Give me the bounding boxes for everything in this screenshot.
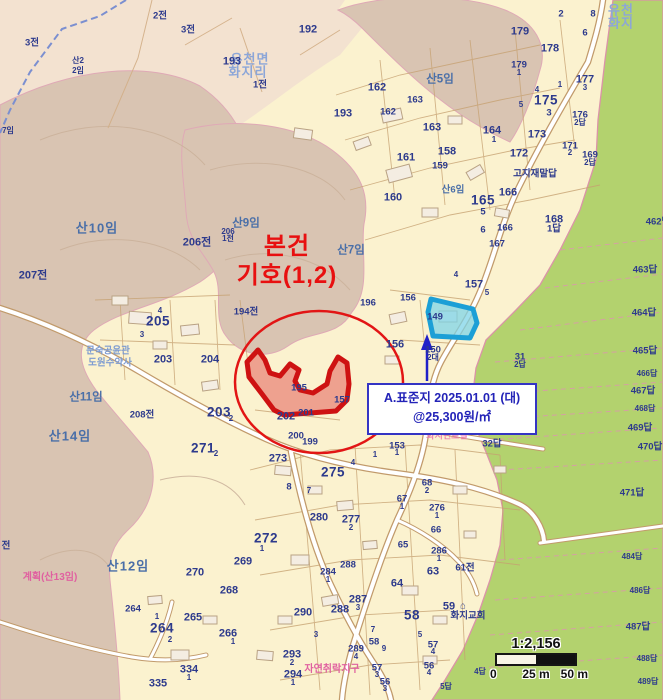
parcel-label: 203 [207,405,231,419]
parcel-label: 58 [404,608,420,622]
parcel-label: 200 [288,431,304,441]
parcel-label: 1 [291,679,295,687]
parcel-label: 1 [437,555,441,563]
region-label: 206전 [183,238,211,249]
scalebar: 1:2,156 0 25 m 50 m [492,636,580,680]
region-label: 문숙공윤관 [86,346,130,356]
parcel-label: 156 [400,293,416,303]
parcel-label: 271 [191,441,215,455]
region-label: 3전 [181,25,195,35]
parcel-label: 199 [302,437,318,447]
parcel-label: 65 [398,540,409,550]
callout-line1: A.표준지 2025.01.01 (대) [369,389,535,408]
region-label: 2전 [153,11,167,21]
parcel-label: 288 [331,605,349,616]
parcel-label: 3 [583,84,587,92]
region-label: 488답 [637,655,658,663]
region-label: 208전 [130,410,155,420]
region-label: 계획(산13임) [23,573,78,583]
parcel-label: 162 [368,83,386,94]
parcel-label: 5 [418,631,422,639]
region-label: 61전 [455,563,474,573]
parcel-label: 1 [260,545,264,553]
region-label: 1전 [222,235,234,243]
standard-lot-callout: A.표준지 2025.01.01 (대) @25,300원/㎡ [367,383,537,435]
region-label: 화지교회 [451,611,486,621]
parcel-label: 2 [168,636,172,644]
parcel-label: 2 [229,415,233,423]
parcel-label: 3 [314,631,318,639]
parcel-label: 166 [499,188,517,199]
region-label: 산2 [72,57,84,65]
parcel-label: 163 [423,123,441,134]
region-label: 4답 [474,668,486,676]
parcel-label: 268 [220,586,238,597]
parcel-label: 2 [425,487,429,495]
parcel-label: 2 [349,524,353,532]
parcel-label: 275 [321,465,345,479]
parcel-label: 192 [299,25,317,36]
region-label: 산10임 [76,222,118,235]
region-label: 2대 [427,354,439,362]
parcel-label: 4 [431,648,435,656]
parcel-label: 1 [326,576,330,584]
region-label: 464답 [632,308,657,318]
region-label: 466답 [637,370,658,378]
region-label: 5답 [440,683,452,691]
region-label: 산6임 [442,185,465,195]
region-label: 1전 [253,80,267,90]
parcel-label: 156 [386,340,404,351]
scale-tick-0: 0 [490,667,497,681]
region-label: 2답 [574,119,586,127]
parcel-label: 173 [528,130,546,141]
region-label: 고지재말답 [513,169,557,179]
parcel-label: 290 [294,608,312,619]
region-label: 화지 [608,17,634,30]
region-label: 207전 [19,271,47,282]
region-label: 467답 [631,386,656,396]
parcel-label: 9 [382,645,386,653]
parcel-label: 203 [154,355,172,366]
parcel-label: 6 [582,28,587,38]
region-label: 2답 [584,159,596,167]
parcel-label: 64 [391,579,403,590]
parcel-label: 157 [334,395,350,405]
parcel-label: 167 [489,239,505,249]
parcel-label: 63 [427,567,439,578]
region-label: 산14임 [49,430,91,443]
parcel-label: 1 [373,451,377,459]
scale-ratio: 1:2,156 [492,636,580,652]
region-label: 469답 [628,423,653,433]
region-label: 2답 [514,361,526,369]
parcel-label: 264 [125,604,141,614]
region-label: 194전 [234,307,259,317]
parcel-label: 66 [431,525,442,535]
region-label: 486답 [630,587,651,595]
parcel-label: 3 [546,108,551,118]
region-label: 산5임 [426,74,454,86]
parcel-label: 4 [354,653,358,661]
region-label: 468답 [635,405,656,413]
parcel-label: 175 [534,93,558,107]
region-label: 465답 [633,346,658,356]
parcel-label: 4 [427,669,431,677]
parcel-label: 264 [150,621,174,635]
region-label: 자연취락지구 [304,665,359,675]
subject-annotation: 본건 기호(1,2) [237,233,338,291]
parcel-label: 7 [307,487,311,495]
parcel-label: 8 [286,482,291,492]
parcel-label: 58 [369,637,380,647]
region-label: 산11임 [69,392,102,404]
parcel-label: 7 [371,626,375,634]
scale-tick-25: 25 m [522,667,549,681]
region-label: 484답 [622,553,643,561]
parcel-label: 178 [541,44,559,55]
parcel-label: 2 [558,9,563,19]
parcel-label: 165 [471,193,495,207]
parcel-label: 2 [290,659,294,667]
region-label: 487답 [626,622,651,632]
region-label: 도원수약사 [88,358,132,368]
parcel-label: 4 [535,86,539,94]
parcel-label: 1 [558,81,562,89]
parcel-label: 265 [184,613,202,624]
map-viewport[interactable]: 2전3전3전산22임유천면화지리1931전192유천화지7임산10임산9임산7임… [0,0,663,700]
parcel-label: 159 [432,161,448,171]
region-label: 3전 [25,38,39,48]
region-label: 463답 [633,265,658,275]
parcel-label: 179 [511,27,529,38]
parcel-label: 3 [375,671,379,679]
region-label: 전 [2,541,11,551]
parcel-label: 6 [480,225,485,235]
parcel-label: 1 [492,136,496,144]
region-label: 489답 [638,678,659,686]
parcel-label: 157 [465,280,483,291]
parcel-label: 158 [438,147,456,158]
parcel-label: 1 [517,69,521,77]
parcel-label: 270 [186,568,204,579]
parcel-label: 2 [214,450,218,458]
region-label: 1답 [547,224,561,234]
region-label: 7임 [2,127,14,135]
parcel-label: 205 [146,314,170,328]
parcel-label: 4 [454,271,458,279]
parcel-label: 163 [407,95,423,105]
parcel-label: 4 [351,459,355,467]
parcel-label: 2 [568,149,572,157]
scale-bar-graphic [495,653,577,666]
parcel-label: 1 [231,638,235,646]
parcel-label: 272 [254,531,278,545]
parcel-label: 196 [360,298,376,308]
parcel-label: 280 [310,513,328,524]
parcel-label: 202 [277,412,295,423]
parcel-label: 3 [356,604,360,612]
parcel-label: 160 [384,193,402,204]
parcel-label: 193 [334,109,352,120]
callout-line2: @25,300원/㎡ [369,408,535,427]
parcel-label: 3 [140,331,144,339]
parcel-label: 1 [187,674,191,682]
region-label: 2임 [72,67,84,75]
parcel-label: 1 [400,503,404,511]
parcel-label: 149 [427,312,443,322]
subject-annotation-line2: 기호(1,2) [237,262,338,291]
subject-annotation-line1: 본건 [237,233,338,262]
parcel-label: 5 [519,101,523,109]
parcel-label: 5 [480,207,485,217]
region-label: 462답 [646,217,663,227]
region-label: 471답 [620,488,645,498]
parcel-label: 335 [149,679,167,690]
scale-tick-50: 50 m [561,667,588,681]
parcel-label: 4 [158,307,162,315]
parcel-label: 166 [497,223,513,233]
parcel-label: 195 [291,383,307,393]
parcel-label: 193 [223,57,241,68]
region-label: 산12임 [107,560,149,573]
region-label: 32답 [482,439,501,449]
parcel-label: 201 [298,408,314,418]
parcel-label: 161 [397,153,415,164]
region-label: 470답 [638,442,663,452]
parcel-label: 3 [383,685,387,693]
parcel-label: 288 [340,560,356,570]
parcel-label: 273 [269,454,287,465]
region-label: 산9임 [232,218,260,230]
parcel-label: 204 [201,355,219,366]
parcel-label: 269 [234,557,252,568]
parcel-label: 5 [485,289,489,297]
parcel-label: 8 [590,9,595,19]
parcel-label: 1 [395,449,399,457]
parcel-label: 1 [435,512,439,520]
region-label: 산7임 [337,245,365,257]
parcel-label: 172 [510,149,528,160]
parcel-label: 162 [380,107,396,117]
